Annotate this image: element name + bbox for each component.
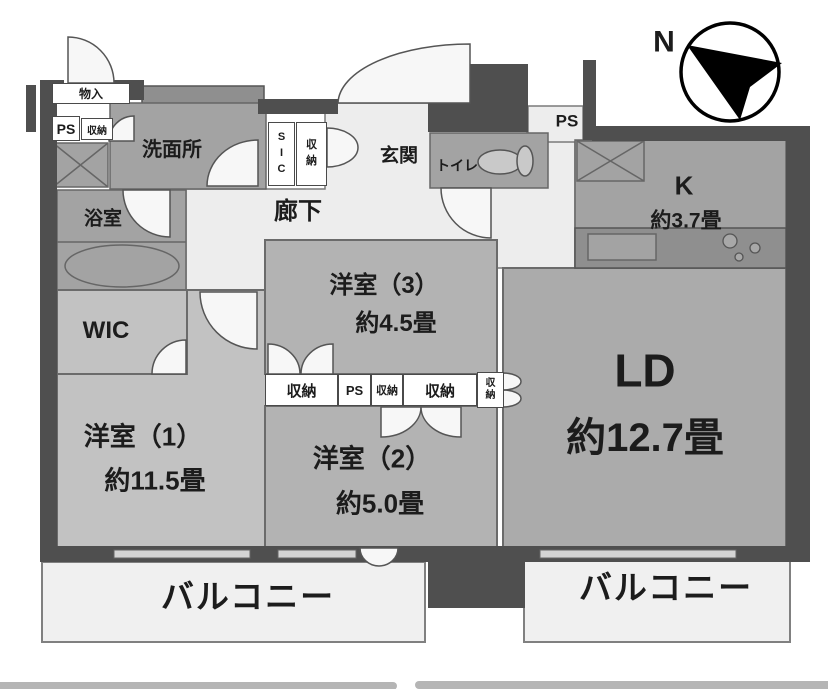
wic-label: WIC [83,318,130,344]
toilet-label: トイレ [436,158,478,173]
kitchen-label: K [675,172,694,201]
wall-right [786,126,810,562]
entry-closet-box: 収 納 [296,122,327,186]
ps-top-right-label: PS [556,113,579,132]
bedroom2-label: 洋室（2） [313,445,431,474]
window-bedroom2 [278,550,356,558]
storage-door-swing [68,37,114,83]
bedroom3-size-label: 約4.5畳 [355,311,436,337]
closet-monoiri-box: 物入 [52,83,130,104]
strip-closet-4: 収 納 [477,372,504,408]
bedroom2-size-label: 約5.0畳 [336,490,424,519]
wall-balcony-divider [428,546,525,608]
strip-closet-3: 収納 [403,374,477,406]
wall-left-stub [26,85,36,132]
wall-top-right [592,126,792,141]
sic-box: S I C [268,122,295,186]
bedroom1-size-label: 約11.5畳 [104,467,205,496]
stove-burner [750,243,760,253]
floor-plan: 物入 PS 収納 S I C 収 納 収納 PS 収納 収納 収 納 洗面所 玄… [0,0,828,689]
bottom-bar-left [0,682,397,689]
living-dining-area [503,268,786,548]
compass-north-label: N [653,26,675,59]
strip-ps: PS [338,374,371,406]
closet-top-left-box: 収納 [81,118,113,140]
toilet-bowl [478,150,522,174]
kitchen-size-label: 約3.7畳 [650,209,721,232]
bathtub [65,245,179,287]
toilet-tank [517,146,533,176]
balcony-left-label: バルコニー [161,579,335,615]
wall-left [40,85,57,562]
balcony-right-label: バルコニー [579,570,753,606]
living-dining-size-label: 約12.7畳 [566,416,724,460]
living-dining-label: LD [614,346,675,397]
stove-burner [735,253,743,261]
strip-closet-1: 収納 [265,374,338,406]
compass [681,23,782,121]
bedroom3-label: 洋室（3） [329,273,438,299]
washroom-label: 洗面所 [142,139,202,161]
stove-burner [723,234,737,248]
kitchen-sink [588,234,656,260]
bathroom-label: 浴室 [84,210,122,231]
window-living [540,550,736,558]
entrance-door-swing [338,44,470,103]
ps-top-left-box: PS [52,116,80,141]
strip-closet-2: 収納 [371,374,403,406]
bedroom1-label: 洋室（1） [84,423,202,452]
bottom-bar-right [415,681,828,689]
entrance-label: 玄関 [380,147,418,168]
bedroom3-area [265,240,497,374]
hallway-label: 廊下 [274,199,322,225]
window-bedroom1 [114,550,250,558]
wall-top-c [258,99,338,114]
